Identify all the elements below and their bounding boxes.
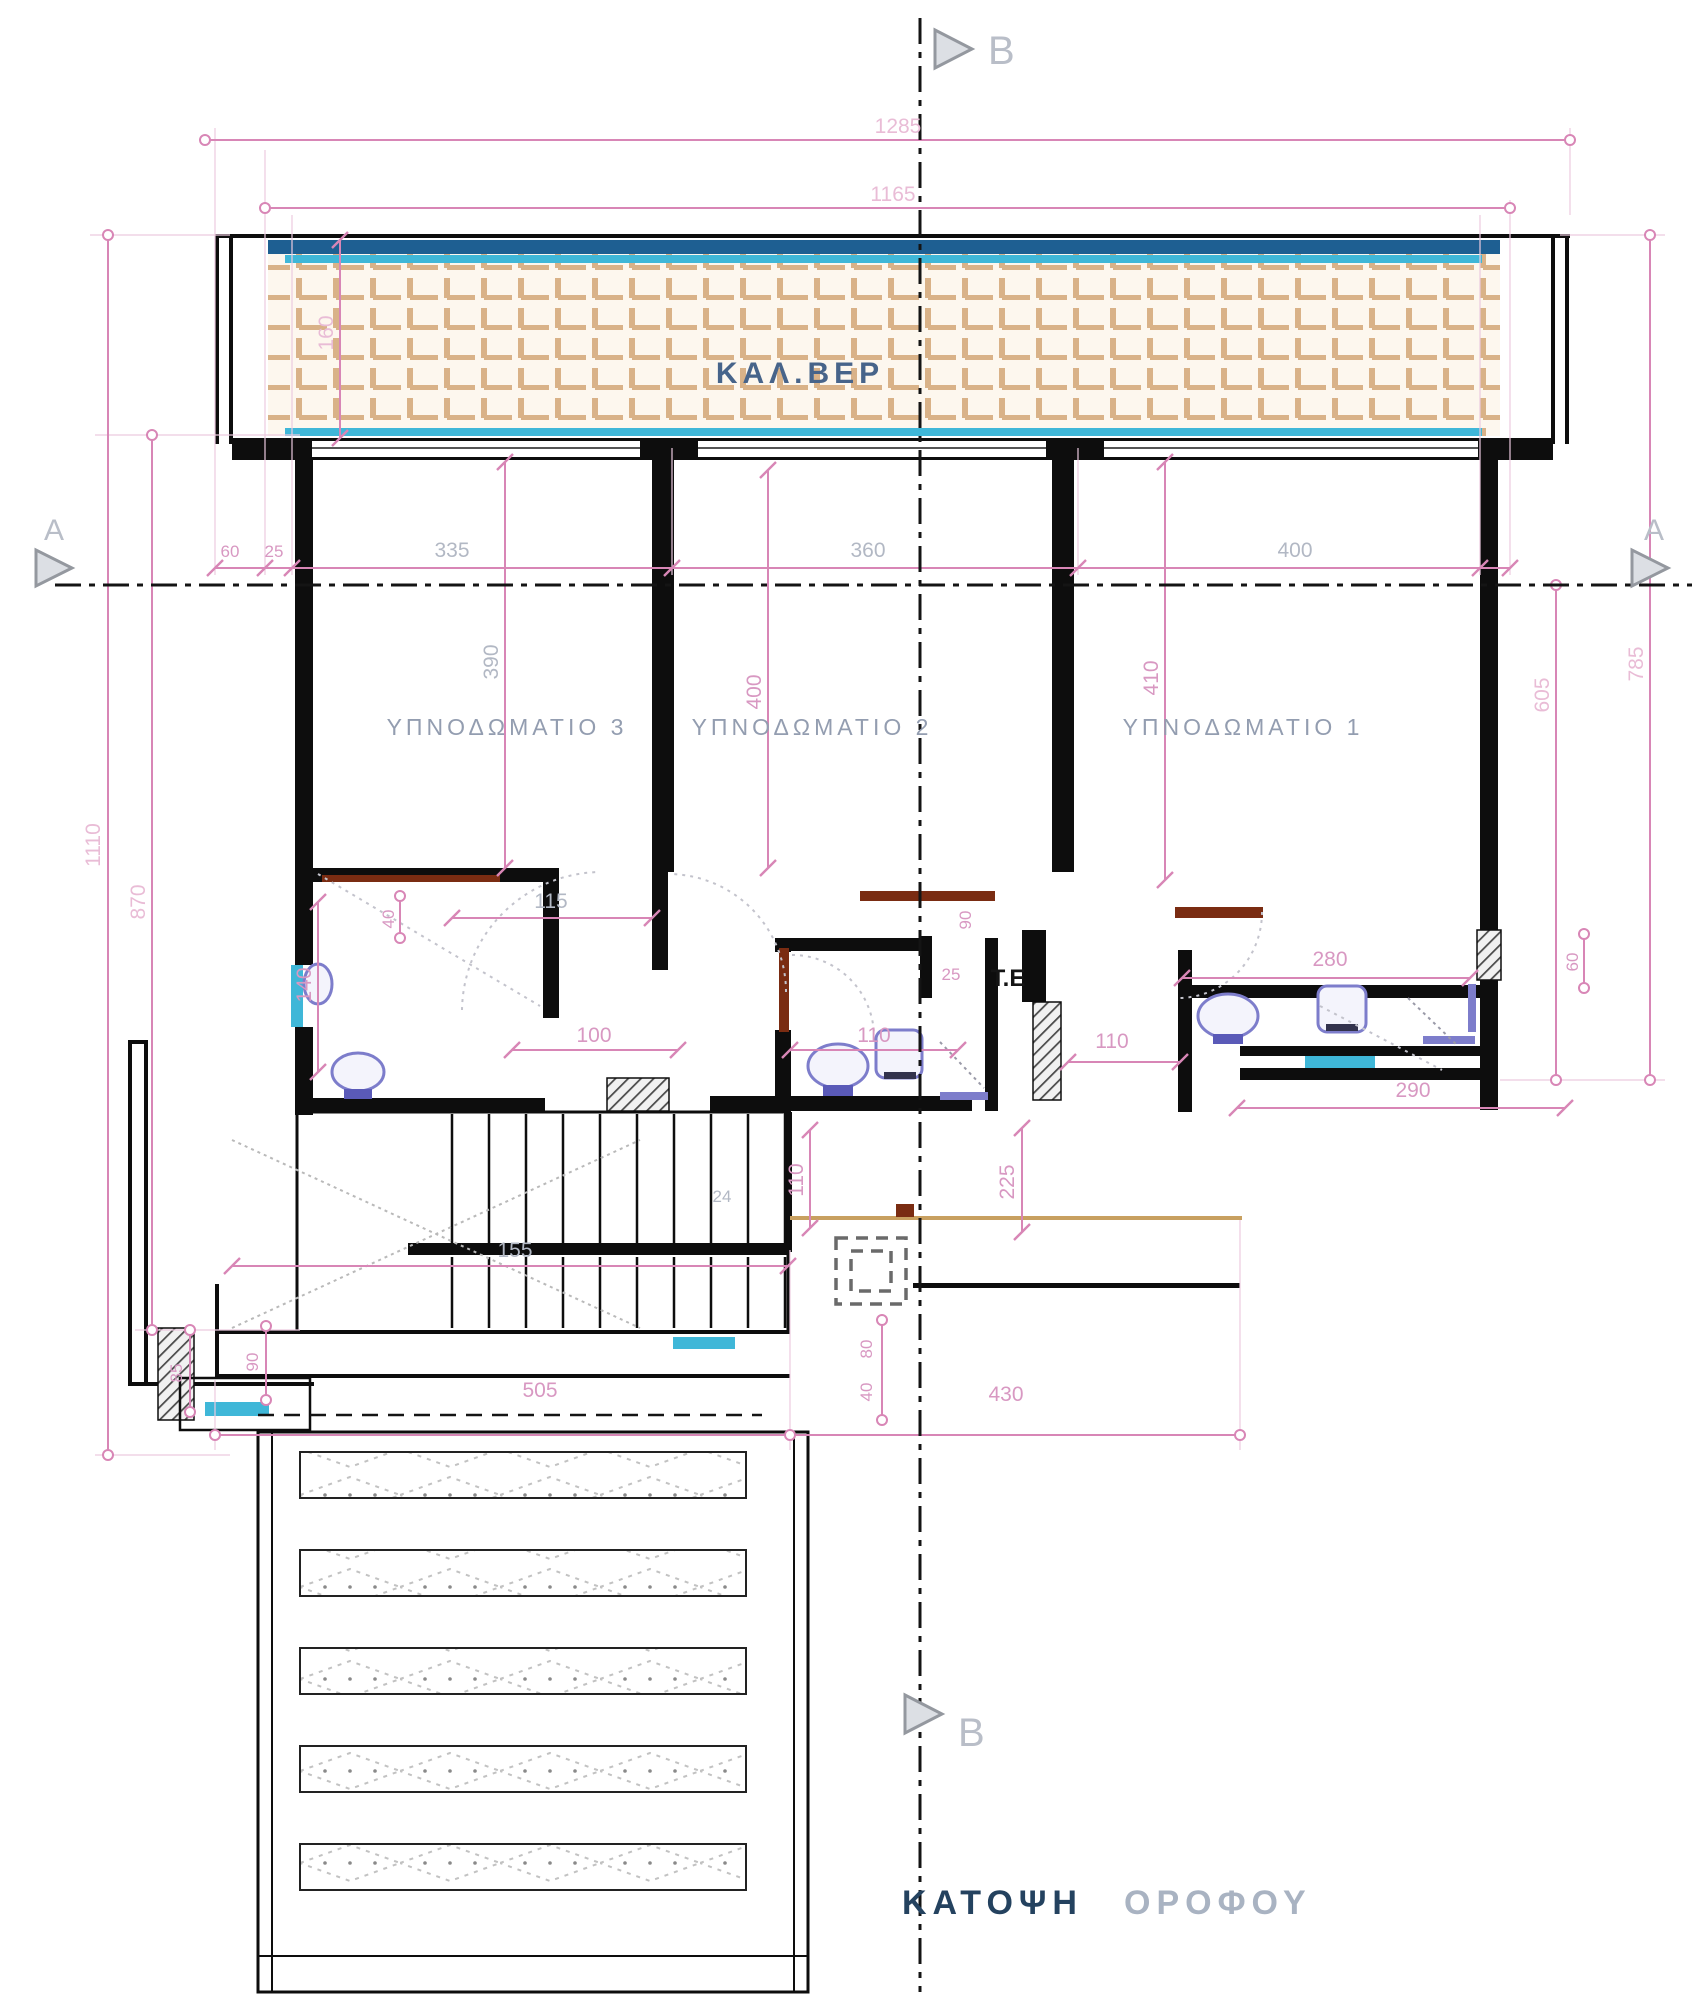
dim-bed1-depth: 410 bbox=[1140, 660, 1163, 695]
window-bath1 bbox=[1305, 1056, 1375, 1068]
room-label-bedroom2: ΥΠΝΟΔΩΜΑΤΙΟ 2 bbox=[692, 714, 933, 740]
room-label-te: Τ.Ε bbox=[991, 965, 1026, 992]
dim-110-stair: 110 bbox=[785, 1163, 808, 1196]
dim-left-outer: 1110 bbox=[82, 823, 105, 867]
dim-110-bath: 110 bbox=[1095, 1030, 1128, 1053]
section-label-b-top: B bbox=[988, 29, 1015, 73]
window-stairhall bbox=[673, 1337, 735, 1349]
dim-225: 225 bbox=[996, 1164, 1019, 1199]
dim-115: 115 bbox=[534, 890, 567, 913]
dim-90-b: 90 bbox=[243, 1353, 262, 1372]
section-label-a-right: A bbox=[1644, 514, 1664, 547]
section-arrow-b-bottom bbox=[905, 1695, 942, 1733]
deck-plank bbox=[300, 1648, 746, 1694]
drawing-title-part2: ΟΡΟΦΟΥ bbox=[1124, 1884, 1312, 1922]
stairs bbox=[232, 1112, 788, 1332]
dim-left-inner: 870 bbox=[127, 884, 150, 919]
stair-direction-cross bbox=[232, 1140, 640, 1328]
deck-plank bbox=[300, 1452, 746, 1498]
dim-bed3-depth: 390 bbox=[480, 644, 503, 679]
section-arrow-a-left bbox=[36, 550, 72, 586]
dim-40-b: 40 bbox=[857, 1383, 876, 1402]
toilet-bath1 bbox=[1198, 994, 1258, 1038]
column-bath1 bbox=[1033, 1002, 1061, 1100]
dim-430: 430 bbox=[988, 1383, 1023, 1406]
door-jamb bbox=[896, 1204, 914, 1217]
room-label-veranda: ΚΑΛ.ΒΕΡ bbox=[716, 357, 884, 390]
section-arrow-b-top bbox=[935, 30, 972, 68]
wardrobe-door bbox=[322, 875, 500, 882]
dim-90: 90 bbox=[956, 911, 975, 930]
dim-60: 60 bbox=[221, 542, 240, 561]
dim-505: 505 bbox=[522, 1379, 557, 1402]
drawing-title-part1: ΚΑΤΟΨΗ bbox=[902, 1884, 1083, 1922]
dim-top-inner: 1165 bbox=[870, 183, 915, 206]
dim-280: 280 bbox=[1312, 948, 1347, 971]
dim-bed2-width: 360 bbox=[850, 539, 885, 562]
dim-100: 100 bbox=[576, 1024, 611, 1047]
dim-140: 140 bbox=[293, 967, 316, 1002]
shaft-hatch bbox=[607, 1078, 669, 1111]
deck-plank bbox=[300, 1746, 746, 1792]
dim-290: 290 bbox=[1395, 1079, 1430, 1102]
pergola-edge bbox=[790, 1216, 1242, 1220]
room-label-bedroom3: ΥΠΝΟΔΩΜΑΤΙΟ 3 bbox=[387, 714, 628, 740]
dim-60-right: 60 bbox=[1563, 953, 1582, 972]
dim-40: 40 bbox=[379, 910, 398, 929]
door-leaf-bath2 bbox=[779, 948, 789, 1032]
shaft-dashed-square bbox=[836, 1238, 906, 1304]
toilet-bath3 bbox=[332, 1053, 384, 1091]
dim-bed2-depth: 400 bbox=[743, 674, 766, 709]
section-label-b-bottom: B bbox=[958, 1711, 985, 1755]
veranda-deck bbox=[268, 240, 1500, 436]
dim-right-outer: 785 bbox=[1625, 646, 1648, 681]
dim-bed3-width: 335 bbox=[434, 539, 469, 562]
dim-right-inner: 605 bbox=[1531, 677, 1554, 712]
column-right bbox=[1477, 930, 1501, 980]
dim-24: 24 bbox=[713, 1187, 732, 1206]
floorplan-drawing: B B A A ΚΑΛ.ΒΕΡ ΥΠΝΟΔΩΜΑΤΙΟ 3 ΥΠΝΟΔΩΜΑΤΙ… bbox=[0, 0, 1699, 2000]
section-label-a-left: A bbox=[44, 514, 64, 547]
dim-25-bath: 25 bbox=[942, 965, 961, 984]
dim-110-hall: 110 bbox=[857, 1024, 890, 1047]
door-leaf-bath1 bbox=[1175, 907, 1263, 918]
deck-plank bbox=[300, 1550, 746, 1596]
door-leaf-hall bbox=[860, 891, 995, 901]
dim-80: 80 bbox=[857, 1340, 876, 1359]
shower-bath2 bbox=[940, 1092, 988, 1100]
floorplan-canvas: B B A A ΚΑΛ.ΒΕΡ ΥΠΝΟΔΩΜΑΤΙΟ 3 ΥΠΝΟΔΩΜΑΤΙ… bbox=[0, 0, 1699, 2000]
dim-25: 25 bbox=[265, 542, 284, 561]
room-label-bedroom1: ΥΠΝΟΔΩΜΑΤΙΟ 1 bbox=[1123, 714, 1364, 740]
dim-top-outer: 1285 bbox=[875, 115, 922, 138]
deck-plank bbox=[300, 1844, 746, 1890]
dim-bed1-width: 400 bbox=[1277, 539, 1312, 562]
bottom-deck bbox=[258, 1415, 808, 1992]
dim-85: 85 bbox=[167, 1364, 186, 1383]
dim-veranda-height: 160 bbox=[315, 315, 338, 350]
dim-155: 155 bbox=[497, 1239, 532, 1262]
